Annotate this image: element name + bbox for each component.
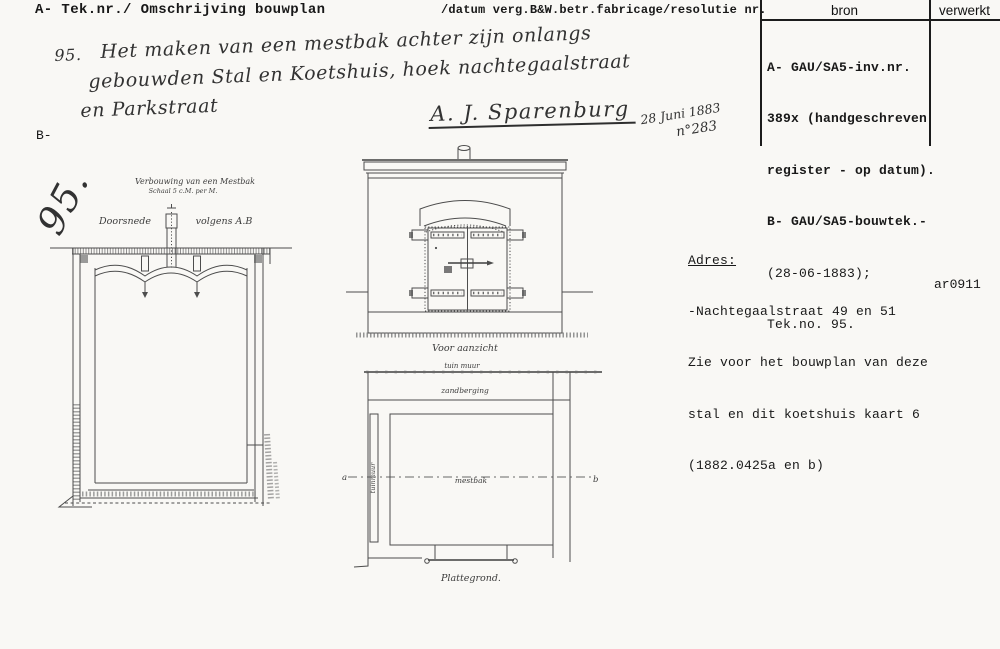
plan-marker-a: a — [342, 473, 347, 483]
section-view-label: Doorsnede — [98, 216, 151, 227]
vent-pipe-section — [166, 204, 177, 269]
handwritten-description-line3: en Parkstraat — [80, 95, 219, 122]
plan-door-opening — [425, 545, 518, 563]
margin-b-label: B- — [36, 128, 52, 143]
address-line: -Nachtegaalstraat 49 en 51 — [688, 304, 928, 319]
source-line: 389x (handgeschreven — [767, 111, 935, 126]
column-header-bron: bron — [760, 3, 929, 18]
handwritten-resolution-number: n°283 — [675, 118, 718, 140]
door-latch — [444, 259, 494, 273]
table-header-rule — [760, 19, 1000, 21]
section-floor — [59, 483, 270, 507]
column-header-verwerkt: verwerkt — [929, 3, 1000, 18]
address-line: (1882.0425a en b) — [688, 458, 928, 473]
section-ref-label: volgens A.B — [196, 216, 253, 227]
plan-marker-b: b — [593, 475, 598, 485]
signature: A. J. Sparenburg — [428, 97, 636, 129]
earth-hatching — [77, 404, 279, 502]
front-caption: Voor aanzicht — [432, 343, 498, 354]
section-scale: Schaal 5 c.M. per M. — [149, 187, 218, 195]
address-block: Adres: -Nachtegaalstraat 49 en 51 Zie vo… — [688, 217, 928, 509]
table-divider-left — [760, 0, 762, 146]
address-line: stal en dit koetshuis kaart 6 — [688, 407, 928, 422]
plan-boundary-step — [354, 558, 422, 567]
address-line: Zie voor het bouwplan van deze — [688, 355, 928, 370]
plan-top-wall-label: tuin muur — [444, 362, 480, 370]
section-walls — [73, 248, 270, 506]
header-left-label: A- Tek.nr./ Omschrijving bouwplan — [35, 2, 325, 18]
plan-caption: Plattegrond. — [440, 573, 501, 584]
section-drawing: Verbouwing van een Mestbak Schaal 5 c.M.… — [30, 172, 320, 522]
plan-sand-label: zandberging — [440, 386, 489, 395]
front-elevation: Voor aanzicht — [346, 146, 593, 355]
header-right-label: /datum verg.B&W.betr.fabricage/resolutie… — [441, 3, 767, 17]
front-and-plan-drawing: Voor aanzicht tuin muur zandberging tuin… — [340, 142, 665, 602]
archive-code: ar0911 — [934, 277, 981, 292]
source-line: A- GAU/SA5-inv.nr. — [767, 60, 935, 75]
vaulted-ceiling — [95, 256, 247, 298]
archive-card: A- Tek.nr./ Omschrijving bouwplan /datum… — [0, 0, 1000, 649]
address-title: Adres: — [688, 253, 928, 268]
roof-vent — [458, 146, 470, 160]
plan-view: tuin muur zandberging tuinmuur mestbak a… — [342, 362, 602, 584]
source-line: register - op datum). — [767, 163, 935, 178]
plan-left-wall-label: tuinmuur — [369, 462, 377, 494]
section-title: Verbouwing van een Mestbak — [135, 177, 255, 186]
handwritten-item-number: 95. — [54, 45, 82, 65]
